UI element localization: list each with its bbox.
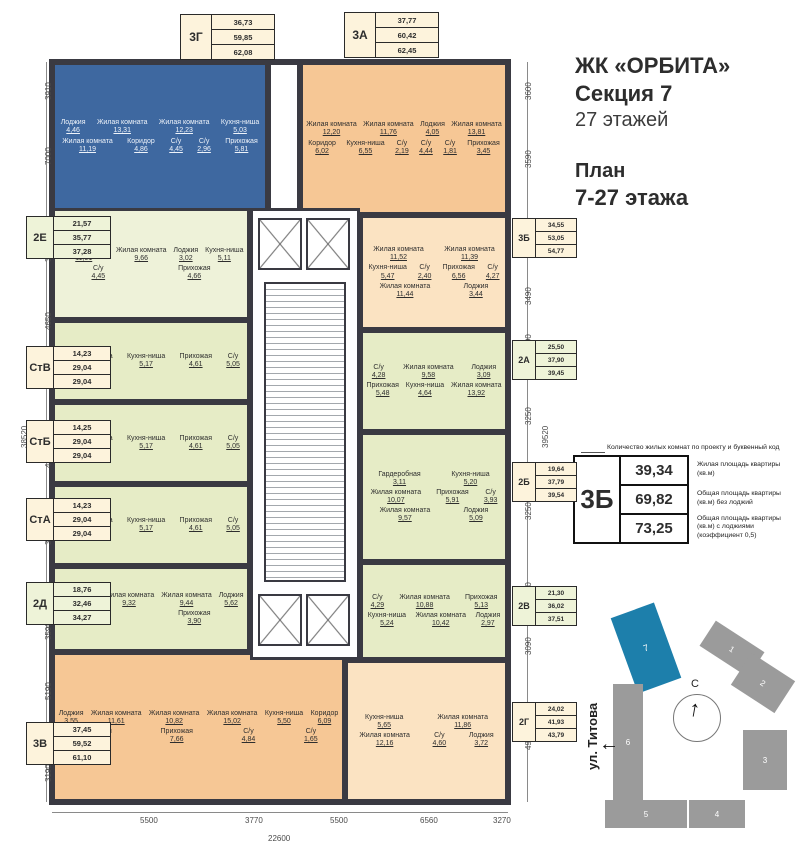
room-area: 9,58	[403, 372, 454, 380]
room-area: 13,81	[451, 129, 502, 137]
room-label: С/у1,65	[304, 728, 318, 744]
room-area: 15,02	[207, 718, 258, 726]
room-name: Жилая комната	[363, 121, 414, 128]
room-name: Прихожая	[161, 728, 193, 735]
room-area: 5,62	[219, 600, 244, 608]
room-label: Прихожая6,56	[442, 264, 474, 280]
room-name: Коридор	[127, 138, 155, 145]
total-area: 29,04	[54, 361, 110, 375]
apartment-code: 2Б	[513, 463, 536, 501]
room-name: Жилая комната	[444, 246, 495, 253]
room-name: С/у	[485, 489, 496, 496]
floor-plan-page: Лоджия4,46Жилая комната13,31Жилая комнат…	[0, 0, 800, 856]
room-area: 5,24	[368, 620, 406, 628]
room-name: С/у	[93, 265, 104, 272]
room-label: С/у2,40	[418, 264, 432, 280]
room-name: Лоджия	[173, 247, 198, 254]
room-area: 12,23	[159, 127, 210, 135]
building-number: 3	[763, 756, 767, 765]
apartment-label-box-2d[interactable]: 2Д18,7632,4634,27	[26, 582, 111, 625]
room-name: С/у	[372, 594, 383, 601]
room-name: Кухня-ниша	[205, 247, 243, 254]
total-area: 60,42	[376, 28, 438, 43]
legend-desc-total: Общая площадь квартиры (кв.м) без лоджий	[697, 484, 795, 513]
legend-total-area-loggia: 73,25	[621, 515, 687, 542]
apartment-code: 2Е	[27, 217, 54, 258]
room-name: Кухня-ниша	[127, 435, 165, 442]
staircase-icon	[264, 282, 346, 582]
room-label: Лоджия3,09	[471, 364, 496, 380]
dimension-right: 3590	[524, 150, 533, 168]
room-label: Кухня-ниша5,50	[265, 710, 303, 726]
room-area: 6,55	[346, 148, 384, 156]
right-dimension-line	[527, 62, 528, 802]
room-area: 4,45	[169, 146, 183, 154]
room-name: Коридор	[308, 140, 336, 147]
apartment-code: 3Б	[513, 219, 536, 257]
room-label: Лоджия2,97	[475, 612, 500, 628]
apartment-2g[interactable]: Кухня-ниша5,65Жилая комната11,86Жилая ко…	[345, 660, 508, 802]
total-area: 59,85	[212, 30, 274, 45]
total-area-with-loggia: 62,45	[376, 43, 438, 57]
room-name: Жилая комната	[380, 507, 431, 514]
room-label: С/у2,96	[197, 138, 211, 154]
room-label: Жилая комната10,07	[371, 489, 422, 505]
room-label: Жилая комната9,66	[116, 247, 167, 263]
room-label: Лоджия3,02	[173, 247, 198, 263]
room-name: С/у	[397, 140, 408, 147]
room-area: 9,66	[116, 255, 167, 263]
living-area: 18,76	[54, 583, 110, 597]
room-area: 5,05	[226, 525, 240, 533]
room-label: Прихожая5,91	[436, 489, 468, 505]
apartment-code: 3Г	[181, 15, 212, 59]
bottom-dimension-line	[52, 812, 508, 813]
room-label: Кухня-ниша5,20	[451, 471, 489, 487]
apartment-areas: 21,3036,0237,51	[536, 587, 576, 625]
apartment-areas: 14,2529,0429,04	[54, 421, 110, 462]
room-label: С/у5,05	[226, 435, 240, 451]
room-area: 5,11	[205, 255, 243, 263]
building-number: 5	[644, 810, 648, 819]
dimension-left: 3190	[44, 764, 53, 782]
room-name: С/у	[228, 435, 239, 442]
room-label: Лоджия4,46	[61, 119, 86, 135]
room-area: 11,39	[444, 254, 495, 262]
room-area: 5,81	[225, 146, 257, 154]
total-area-with-loggia: 61,10	[54, 751, 110, 764]
apartment-code: СтА	[27, 499, 54, 540]
room-label: С/у4,84	[242, 728, 256, 744]
living-area: 24,02	[536, 703, 576, 716]
room-name: Прихожая	[180, 517, 212, 524]
room-name: Лоджия	[420, 121, 445, 128]
site-building-3: 3	[743, 730, 787, 790]
room-area: 9,32	[104, 600, 155, 608]
apartment-areas: 37,4559,5261,10	[54, 723, 110, 764]
room-label: С/у5,05	[226, 353, 240, 369]
room-area: 4,64	[406, 390, 444, 398]
room-label: Кухня-ниша5,17	[127, 517, 165, 533]
room-name: С/у	[434, 732, 445, 739]
room-name: Прихожая	[436, 489, 468, 496]
room-area: 9,44	[161, 600, 212, 608]
room-name: Прихожая	[465, 594, 497, 601]
street-label: ул. Титова	[585, 703, 600, 770]
room-area: 5,17	[127, 361, 165, 369]
room-name: Прихожая	[178, 610, 210, 617]
apartment-areas: 24,0241,9343,79	[536, 703, 576, 741]
room-name: Жилая комната	[437, 714, 488, 721]
building-number: 1	[728, 644, 737, 654]
room-label: Кухня-ниша5,11	[205, 247, 243, 263]
dimension-bottom: 5500	[330, 816, 348, 825]
building-number: 4	[715, 810, 719, 819]
apartment-label-box-sta[interactable]: СтА14,2329,0429,04	[26, 498, 111, 541]
total-area: 59,52	[54, 737, 110, 751]
apartment-label-box-2e[interactable]: 2Е21,5735,7737,28	[26, 216, 111, 259]
room-area: 5,05	[226, 443, 240, 451]
apartment-2v[interactable]: С/у4,29Жилая комната10,88Прихожая5,13Кух…	[360, 562, 508, 660]
room-label: Жилая комната15,02	[207, 710, 258, 726]
total-area: 41,93	[536, 716, 576, 729]
room-name: Кухня-ниша	[221, 119, 259, 126]
dimension-left: 7000	[44, 147, 53, 165]
apartment-code: СтВ	[27, 347, 54, 388]
living-area: 14,23	[54, 499, 110, 513]
total-area: 36,02	[536, 600, 576, 613]
room-area: 11,86	[437, 722, 488, 730]
total-area: 37,90	[536, 354, 576, 367]
room-name: Коридор	[311, 710, 339, 717]
living-area: 14,23	[54, 347, 110, 361]
core-top-shaft	[268, 62, 300, 211]
room-name: С/у	[171, 138, 182, 145]
room-area: 5,13	[465, 602, 497, 610]
total-area: 29,04	[54, 513, 110, 527]
room-area: 5,17	[127, 525, 165, 533]
elevator-shaft-icon	[306, 218, 350, 270]
room-label: Жилая комната13,92	[451, 382, 502, 398]
apartment-label-box-2a[interactable]: 2А25,5037,9039,45	[512, 340, 577, 380]
room-name: Жилая комната	[149, 710, 200, 717]
room-label: Жилая комната11,76	[363, 121, 414, 137]
room-label: Жилая комната11,19	[62, 138, 113, 154]
room-name: Прихожая	[178, 265, 210, 272]
legend-note: Количество жилых комнат по проекту и бук…	[607, 444, 795, 451]
room-label: Жилая комната13,81	[451, 121, 502, 137]
apartment-label-box-3b[interactable]: 3Б34,5553,0554,77	[512, 218, 577, 258]
dimension-left: 3910	[44, 82, 53, 100]
room-label: Коридор4,86	[127, 138, 155, 154]
living-area: 21,57	[54, 217, 110, 231]
room-label: Кухня-ниша6,55	[346, 140, 384, 156]
legend-living-area: 39,34	[621, 457, 687, 486]
room-name: Кухня-ниша	[451, 471, 489, 478]
room-area: 13,31	[97, 127, 148, 135]
room-label: Жилая комната10,42	[415, 612, 466, 628]
room-label: Прихожая4,61	[180, 517, 212, 533]
room-name: Лоджия	[475, 612, 500, 619]
room-label: Жилая комната12,20	[306, 121, 357, 137]
room-name: Жилая комната	[399, 594, 450, 601]
legend-apartment-code: 3Б	[575, 457, 621, 542]
room-label: Жилая комната12,16	[359, 732, 410, 748]
room-label: С/у4,60	[433, 732, 447, 748]
total-area-with-loggia: 29,04	[54, 527, 110, 540]
room-area: 5,47	[368, 273, 406, 281]
total-area-with-loggia: 37,51	[536, 613, 576, 625]
room-name: Жилая комната	[359, 732, 410, 739]
room-name: Жилая комната	[373, 246, 424, 253]
room-name: Лоджия	[59, 710, 84, 717]
room-name: Лоджия	[469, 732, 494, 739]
apartment-code: 2А	[513, 341, 536, 379]
apartment-label-box-stv[interactable]: СтВ14,2329,0429,04	[26, 346, 111, 389]
room-area: 6,09	[311, 718, 339, 726]
apartment-2b[interactable]: Гардеробная3,11Кухня-ниша5,20Жилая комна…	[360, 432, 508, 562]
room-label: С/у3,93	[484, 489, 498, 505]
room-name: С/у	[228, 517, 239, 524]
room-name: Жилая комната	[62, 138, 113, 145]
apartment-areas: 14,2329,0429,04	[54, 499, 110, 540]
room-area: 11,76	[363, 129, 414, 137]
total-area-with-loggia: 34,27	[54, 611, 110, 624]
apartment-3b[interactable]: Жилая комната11,52Жилая комната11,39Кухн…	[360, 215, 508, 330]
room-label: Жилая комната10,82	[149, 710, 200, 726]
room-name: Жилая комната	[161, 592, 212, 599]
room-label: Жилая комната13,31	[97, 119, 148, 135]
room-name: Прихожая	[366, 382, 398, 389]
dimension-bottom: 6560	[420, 816, 438, 825]
room-area: 4,27	[486, 273, 500, 281]
living-area: 21,30	[536, 587, 576, 600]
room-name: Жилая комната	[371, 489, 422, 496]
room-area: 11,44	[380, 291, 431, 299]
dimension-right: 3490	[524, 287, 533, 305]
room-label: Кухня-ниша5,17	[127, 353, 165, 369]
room-label: Кухня-ниша4,64	[406, 382, 444, 398]
room-label: С/у2,19	[395, 140, 409, 156]
room-area: 11,52	[373, 254, 424, 262]
total-area-with-loggia: 43,79	[536, 729, 576, 741]
room-area: 4,60	[433, 740, 447, 748]
room-label: С/у4,27	[486, 264, 500, 280]
room-area: 4,29	[371, 602, 385, 610]
apartment-label-box-2v[interactable]: 2В21,3036,0237,51	[512, 586, 577, 626]
site-building-7: 7	[611, 603, 682, 694]
apartment-label-box-3a[interactable]: 3А37,7760,4262,45	[344, 12, 439, 58]
elevator-shaft-icon	[258, 218, 302, 270]
site-building-4: 4	[689, 800, 745, 828]
room-name: Лоджия	[464, 507, 489, 514]
room-name: С/у	[243, 728, 254, 735]
room-name: Лоджия	[464, 283, 489, 290]
room-name: Жилая комната	[451, 121, 502, 128]
room-area: 4,84	[242, 736, 256, 744]
room-area: 3,90	[178, 618, 210, 626]
apartment-label-box-stb[interactable]: СтБ14,2529,0429,04	[26, 420, 111, 463]
apartment-code: 2Д	[27, 583, 54, 624]
total-area-with-loggia: 37,28	[54, 245, 110, 258]
room-area: 3,02	[173, 255, 198, 263]
room-area: 1,65	[304, 736, 318, 744]
room-label: Жилая комната11,44	[380, 283, 431, 299]
total-area-with-loggia: 54,77	[536, 245, 576, 257]
total-area: 37,79	[536, 476, 576, 489]
room-area: 4,46	[61, 127, 86, 135]
room-name: Кухня-ниша	[406, 382, 444, 389]
dimension-bottom-total: 22600	[268, 834, 290, 843]
dimension-right-total: 39520	[541, 426, 550, 448]
living-area: 25,50	[536, 341, 576, 354]
room-area: 3,44	[464, 291, 489, 299]
room-name: Кухня-ниша	[365, 714, 403, 721]
room-label: Жилая комната9,32	[104, 592, 155, 608]
room-area: 10,88	[399, 602, 450, 610]
room-name: Кухня-ниша	[127, 517, 165, 524]
room-name: Кухня-ниша	[368, 264, 406, 271]
room-name: Кухня-ниша	[368, 612, 406, 619]
apartment-areas: 36,7359,8562,08	[212, 15, 274, 59]
apartment-areas: 14,2329,0429,04	[54, 347, 110, 388]
room-area: 7,66	[161, 736, 193, 744]
room-area: 4,61	[180, 361, 212, 369]
living-area: 19,64	[536, 463, 576, 476]
room-name: С/у	[228, 353, 239, 360]
legend-total-area: 69,82	[621, 486, 687, 515]
room-label: Жилая комната11,86	[437, 714, 488, 730]
apartment-areas: 21,5735,7737,28	[54, 217, 110, 258]
total-area-with-loggia: 29,04	[54, 449, 110, 462]
room-area: 6,56	[442, 273, 474, 281]
apartment-3g[interactable]: Лоджия4,46Жилая комната13,31Жилая комнат…	[52, 62, 268, 211]
room-name: Жилая комната	[104, 592, 155, 599]
apartment-label-box-2b[interactable]: 2Б19,6437,7939,54	[512, 462, 577, 502]
room-area: 13,92	[451, 390, 502, 398]
room-label: Жилая комната11,39	[444, 246, 495, 262]
apartment-label-box-2g[interactable]: 2Г24,0241,9343,79	[512, 702, 577, 742]
room-area: 5,48	[366, 390, 398, 398]
room-area: 5,05	[226, 361, 240, 369]
plan-label-line1: План	[575, 159, 790, 184]
room-name: Прихожая	[180, 353, 212, 360]
room-name: Прихожая	[467, 140, 499, 147]
room-area: 4,86	[127, 146, 155, 154]
living-area: 37,45	[54, 723, 110, 737]
dimension-bottom: 3770	[245, 816, 263, 825]
room-name: Гардеробная	[378, 471, 420, 478]
room-area: 2,40	[418, 273, 432, 281]
room-label: Прихожая3,45	[467, 140, 499, 156]
room-area: 5,17	[127, 443, 165, 451]
room-area: 10,07	[371, 497, 422, 505]
room-label: С/у5,05	[226, 517, 240, 533]
room-label: Кухня-ниша5,17	[127, 435, 165, 451]
site-plan: 7 6 5 4 1 2 3 С ↑ ул. Титова ←	[585, 592, 797, 824]
room-area: 12,16	[359, 740, 410, 748]
total-area-with-loggia: 62,08	[212, 45, 274, 59]
room-area: 4,45	[91, 273, 105, 281]
apartment-code: 2В	[513, 587, 536, 625]
room-area: 5,65	[365, 722, 403, 730]
room-area: 6,02	[308, 148, 336, 156]
apartment-label-box-3g[interactable]: 3Г36,7359,8562,08	[180, 14, 275, 60]
room-area: 4,05	[420, 129, 445, 137]
room-name: С/у	[373, 364, 384, 371]
room-name: Кухня-ниша	[127, 353, 165, 360]
room-area: 3,45	[467, 148, 499, 156]
room-label: Прихожая4,61	[180, 353, 212, 369]
section-title: Секция 7	[575, 80, 790, 108]
apartment-areas: 19,6437,7939,54	[536, 463, 576, 501]
room-label: Жилая комната9,44	[161, 592, 212, 608]
building-number: 6	[626, 738, 630, 747]
room-label: Коридор6,02	[308, 140, 336, 156]
room-label: Жилая комната9,58	[403, 364, 454, 380]
dimension-bottom: 5500	[140, 816, 158, 825]
room-name: Прихожая	[442, 264, 474, 271]
apartment-areas: 18,7632,4634,27	[54, 583, 110, 624]
plan-label-line2: 7-27 этажа	[575, 184, 790, 212]
room-name: Жилая комната	[91, 710, 142, 717]
room-label: Прихожая5,13	[465, 594, 497, 610]
dimension-left: 5190	[44, 682, 53, 700]
total-area-with-loggia: 29,04	[54, 375, 110, 388]
total-area: 35,77	[54, 231, 110, 245]
room-label: Кухня-ниша5,47	[368, 264, 406, 280]
legend-sample-box: 3Б 39,34 69,82 73,25	[573, 455, 689, 544]
room-area: 4,66	[178, 273, 210, 281]
room-name: Лоджия	[61, 119, 86, 126]
room-label: Лоджия3,72	[469, 732, 494, 748]
floors-subtitle: 27 этажей	[575, 107, 790, 133]
room-name: Лоджия	[219, 592, 244, 599]
apartment-areas: 25,5037,9039,45	[536, 341, 576, 379]
room-area: 9,57	[380, 515, 431, 523]
room-area: 10,42	[415, 620, 466, 628]
apartment-2a[interactable]: С/у4,28Жилая комната9,58Лоджия3,09Прихож…	[360, 330, 508, 432]
building-number: 2	[759, 678, 768, 688]
total-area-with-loggia: 39,54	[536, 489, 576, 501]
elevator-shaft-icon	[306, 594, 350, 646]
elevator-shaft-icon	[258, 594, 302, 646]
room-area: 10,82	[149, 718, 200, 726]
room-name: Кухня-ниша	[265, 710, 303, 717]
room-area: 4,61	[180, 525, 212, 533]
dimension-right: 3250	[524, 502, 533, 520]
apartment-label-box-3v[interactable]: 3В37,4559,5261,10	[26, 722, 111, 765]
room-area: 3,11	[378, 479, 420, 487]
room-area: 11,19	[62, 146, 113, 154]
room-name: С/у	[419, 264, 430, 271]
room-area: 5,03	[221, 127, 259, 135]
room-label: Жилая комната12,23	[159, 119, 210, 135]
dimension-left: 4650	[44, 312, 53, 330]
dimension-right: 3090	[524, 637, 533, 655]
room-area: 1,81	[443, 148, 457, 156]
room-label: Гардеробная3,11	[378, 471, 420, 487]
legend: Количество жилых комнат по проекту и бук…	[573, 444, 795, 544]
room-name: Жилая комната	[403, 364, 454, 371]
room-label: Прихожая5,48	[366, 382, 398, 398]
room-area: 3,09	[471, 372, 496, 380]
building-number: 7	[642, 642, 650, 653]
compass-north-label: С	[691, 678, 699, 690]
room-label: Кухня-ниша5,03	[221, 119, 259, 135]
room-area: 5,91	[436, 497, 468, 505]
apartment-3a[interactable]: Жилая комната12,20Жилая комната11,76Лодж…	[300, 62, 508, 215]
